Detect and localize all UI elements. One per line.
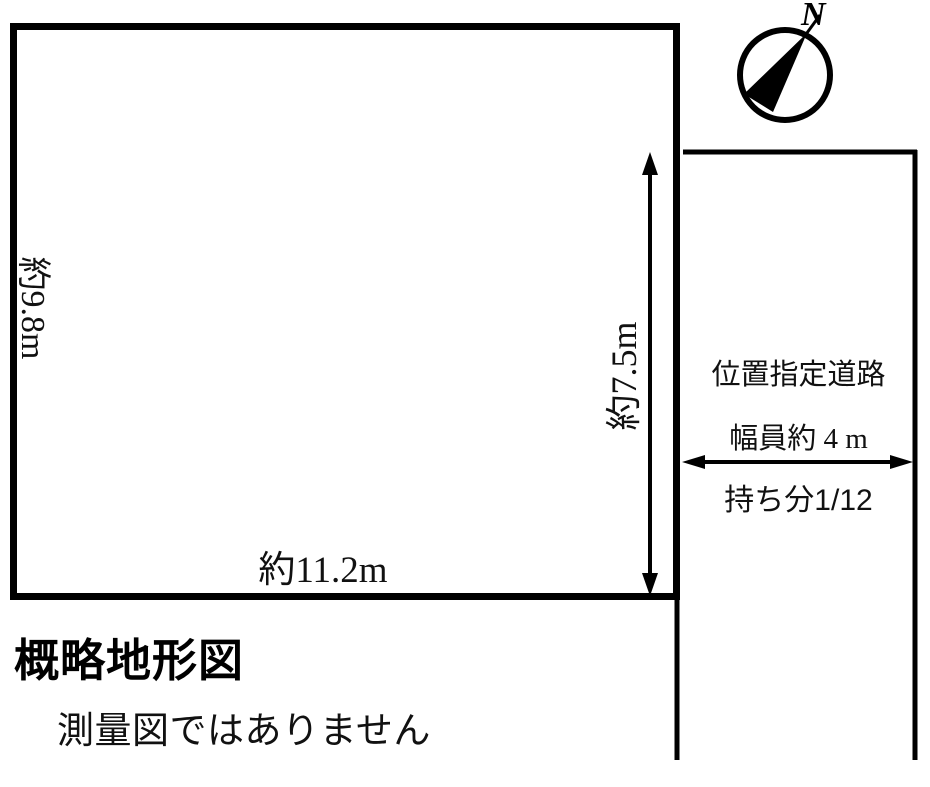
road-name-label: 位置指定道路 (680, 358, 917, 392)
road-share-fraction: 1/12 (814, 484, 872, 517)
figure-title: 概略地形図 (14, 624, 244, 689)
right-dimension-label: 約7.5m (602, 306, 646, 446)
horizontal-dimension-arrow (682, 455, 913, 469)
left-dimension-label: 約9.8m (10, 243, 54, 373)
compass-circle (740, 30, 830, 120)
figure-disclaimer: 測量図ではありません (57, 700, 431, 754)
land-shape-diagram: N 約9.8m 約7.5m 約11.2m 位置指定道路 幅員約 4 m 持ち分1… (0, 0, 930, 787)
road-share-prefix: 持ち分 (724, 484, 814, 517)
land-plot-outline (10, 23, 680, 600)
road-share-label: 持ち分1/12 (680, 484, 917, 518)
compass-needle (744, 33, 807, 112)
bottom-dimension-label: 約11.2m (223, 549, 423, 593)
north-label: N (801, 0, 826, 34)
road-width-label: 幅員約 4 m (680, 422, 917, 456)
